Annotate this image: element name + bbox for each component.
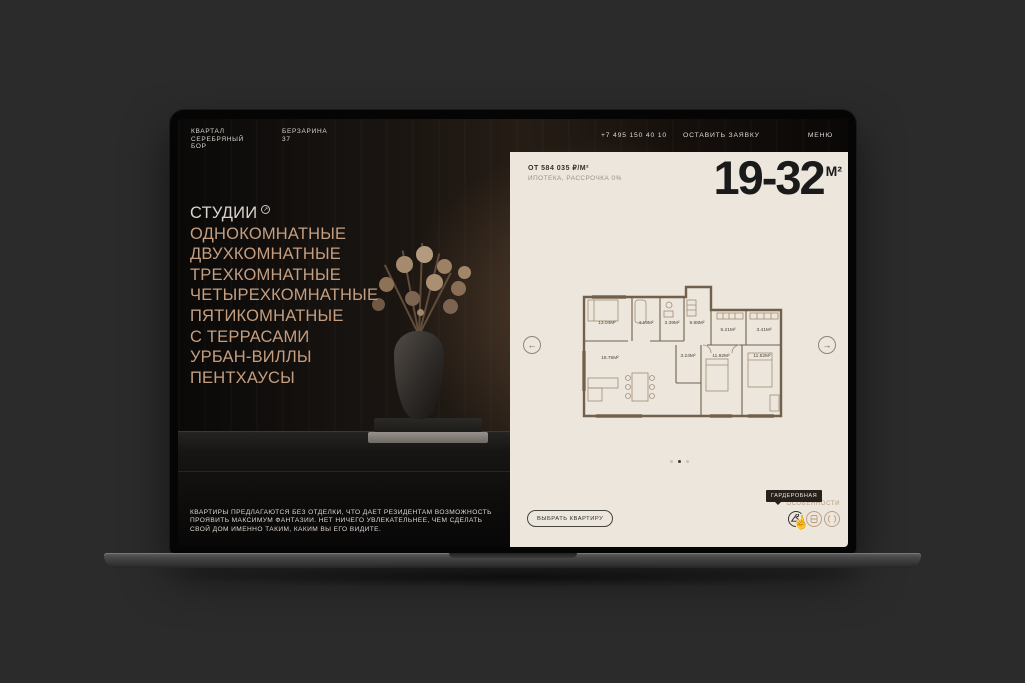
arch-window-icon (827, 514, 837, 524)
carousel-dot[interactable] (670, 460, 673, 463)
room-area: 11.52М² (753, 353, 771, 359)
offer-panel: ОТ 584 035 ₽/М² ИПОТЕКА, РАССРОЧКА 0% 19… (510, 152, 848, 547)
circle-arrow-icon: ↗ (261, 205, 270, 214)
nav-item-penthouses[interactable]: ПЕНТХАУСЫ (190, 368, 378, 389)
nav-item-4room[interactable]: ЧЕТЫРЕХКОМНАТНЫЕ (190, 285, 378, 306)
room-area: 4.19М² (639, 320, 654, 326)
arrow-left-icon: ← (528, 340, 537, 350)
nav-item-urban-villas[interactable]: УРБАН-ВИЛЛЫ (190, 347, 378, 368)
window-icon (809, 514, 819, 524)
page-background: КВАРТАЛ СЕРЕБРЯНЫЙ БОР БЕРЗАРИНА 37 +7 4… (0, 0, 1025, 683)
nav-item-studios[interactable]: СТУДИИ ↗ (190, 203, 378, 224)
room-area: 18.75М² (601, 355, 619, 361)
intro-text: КВАРТИРЫ ПРЕДЛАГАЮТСЯ БЕЗ ОТДЕЛКИ, ЧТО Д… (190, 509, 505, 535)
arrow-right-icon: → (823, 340, 832, 350)
area-range-value: 19-32 (713, 151, 823, 204)
project-address: БЕРЗАРИНА 37 (282, 128, 327, 143)
nav-item-label: СТУДИИ (190, 203, 257, 224)
nav-item-2room[interactable]: ДВУХКОМНАТНЫЕ (190, 244, 378, 265)
address-line: БЕРЗАРИНА (282, 128, 327, 136)
room-area: 3.24М² (681, 353, 696, 359)
room-area: 3.39М² (665, 320, 680, 326)
outer-walls (584, 287, 781, 416)
room-area: 11.92М² (712, 353, 730, 359)
wardrobe-tooltip: ГАРДЕРОБНАЯ (766, 490, 822, 502)
room-area: 5.21М² (721, 327, 736, 333)
carousel-dots (510, 460, 848, 463)
room-area: 3.41М² (757, 327, 772, 333)
nav-item-1room[interactable]: ОДНОКОМНАТНЫЕ (190, 224, 378, 245)
price-from: ОТ 584 035 ₽/М² (528, 164, 589, 172)
laptop-lid-notch (449, 553, 577, 558)
site-header: КВАРТАЛ СЕРЕБРЯНЫЙ БОР БЕРЗАРИНА 37 +7 4… (178, 119, 848, 152)
book-stack-light (368, 432, 488, 443)
carousel-dot[interactable] (678, 460, 681, 463)
nav-item-3room[interactable]: ТРЕХКОМНАТНЫЕ (190, 265, 378, 286)
apartment-type-nav: СТУДИИ ↗ ОДНОКОМНАТНЫЕ ДВУХКОМНАТНЫЕ ТРЕ… (190, 203, 378, 388)
area-unit: М² (826, 163, 842, 179)
address-line: 37 (282, 136, 327, 144)
website-screen: КВАРТАЛ СЕРЕБРЯНЫЙ БОР БЕРЗАРИНА 37 +7 4… (178, 119, 848, 547)
prev-plan-button[interactable]: ← (523, 336, 541, 354)
room-area: 13.04М² (598, 320, 616, 326)
room-area: 9.88М² (690, 320, 705, 326)
feature-arch-window-button[interactable] (824, 511, 840, 527)
select-apartment-button[interactable]: ВЫБРАТЬ КВАРТИРУ (527, 510, 613, 527)
leave-request-button[interactable]: ОСТАВИТЬ ЗАЯВКУ (683, 132, 760, 139)
floor-plan: 13.04М² 4.19М² 3.39М² 9.88М² 5.21М² 3.41… (580, 283, 785, 425)
logo-line: КВАРТАЛ (191, 128, 244, 136)
mouse-cursor: ☝ (791, 513, 811, 532)
mortgage-terms: ИПОТЕКА, РАССРОЧКА 0% (528, 175, 622, 182)
logo-line: БОР (191, 143, 244, 151)
dried-flower-stems (418, 251, 420, 335)
area-range: 19-32М² (713, 154, 842, 201)
carousel-dot[interactable] (686, 460, 689, 463)
vase (394, 331, 444, 419)
logo-line: СЕРЕБРЯНЫЙ (191, 136, 244, 144)
laptop-shadow (150, 566, 880, 588)
dried-flower-blooms (417, 309, 424, 316)
laptop-screen-bezel: КВАРТАЛ СЕРЕБРЯНЫЙ БОР БЕРЗАРИНА 37 +7 4… (170, 110, 856, 554)
floor-plan-drawing: 13.04М² 4.19М² 3.39М² 9.88М² 5.21М² 3.41… (580, 283, 785, 425)
nav-item-terraces[interactable]: С ТЕРРАСАМИ (190, 327, 378, 348)
book-stack-dark (374, 418, 482, 432)
menu-button[interactable]: МЕНЮ (808, 132, 833, 139)
next-plan-button[interactable]: → (818, 336, 836, 354)
phone-link[interactable]: +7 495 150 40 10 (601, 132, 667, 139)
site-logo[interactable]: КВАРТАЛ СЕРЕБРЯНЫЙ БОР (191, 128, 244, 151)
nav-item-5room[interactable]: ПЯТИКОМНАТНЫЕ (190, 306, 378, 327)
